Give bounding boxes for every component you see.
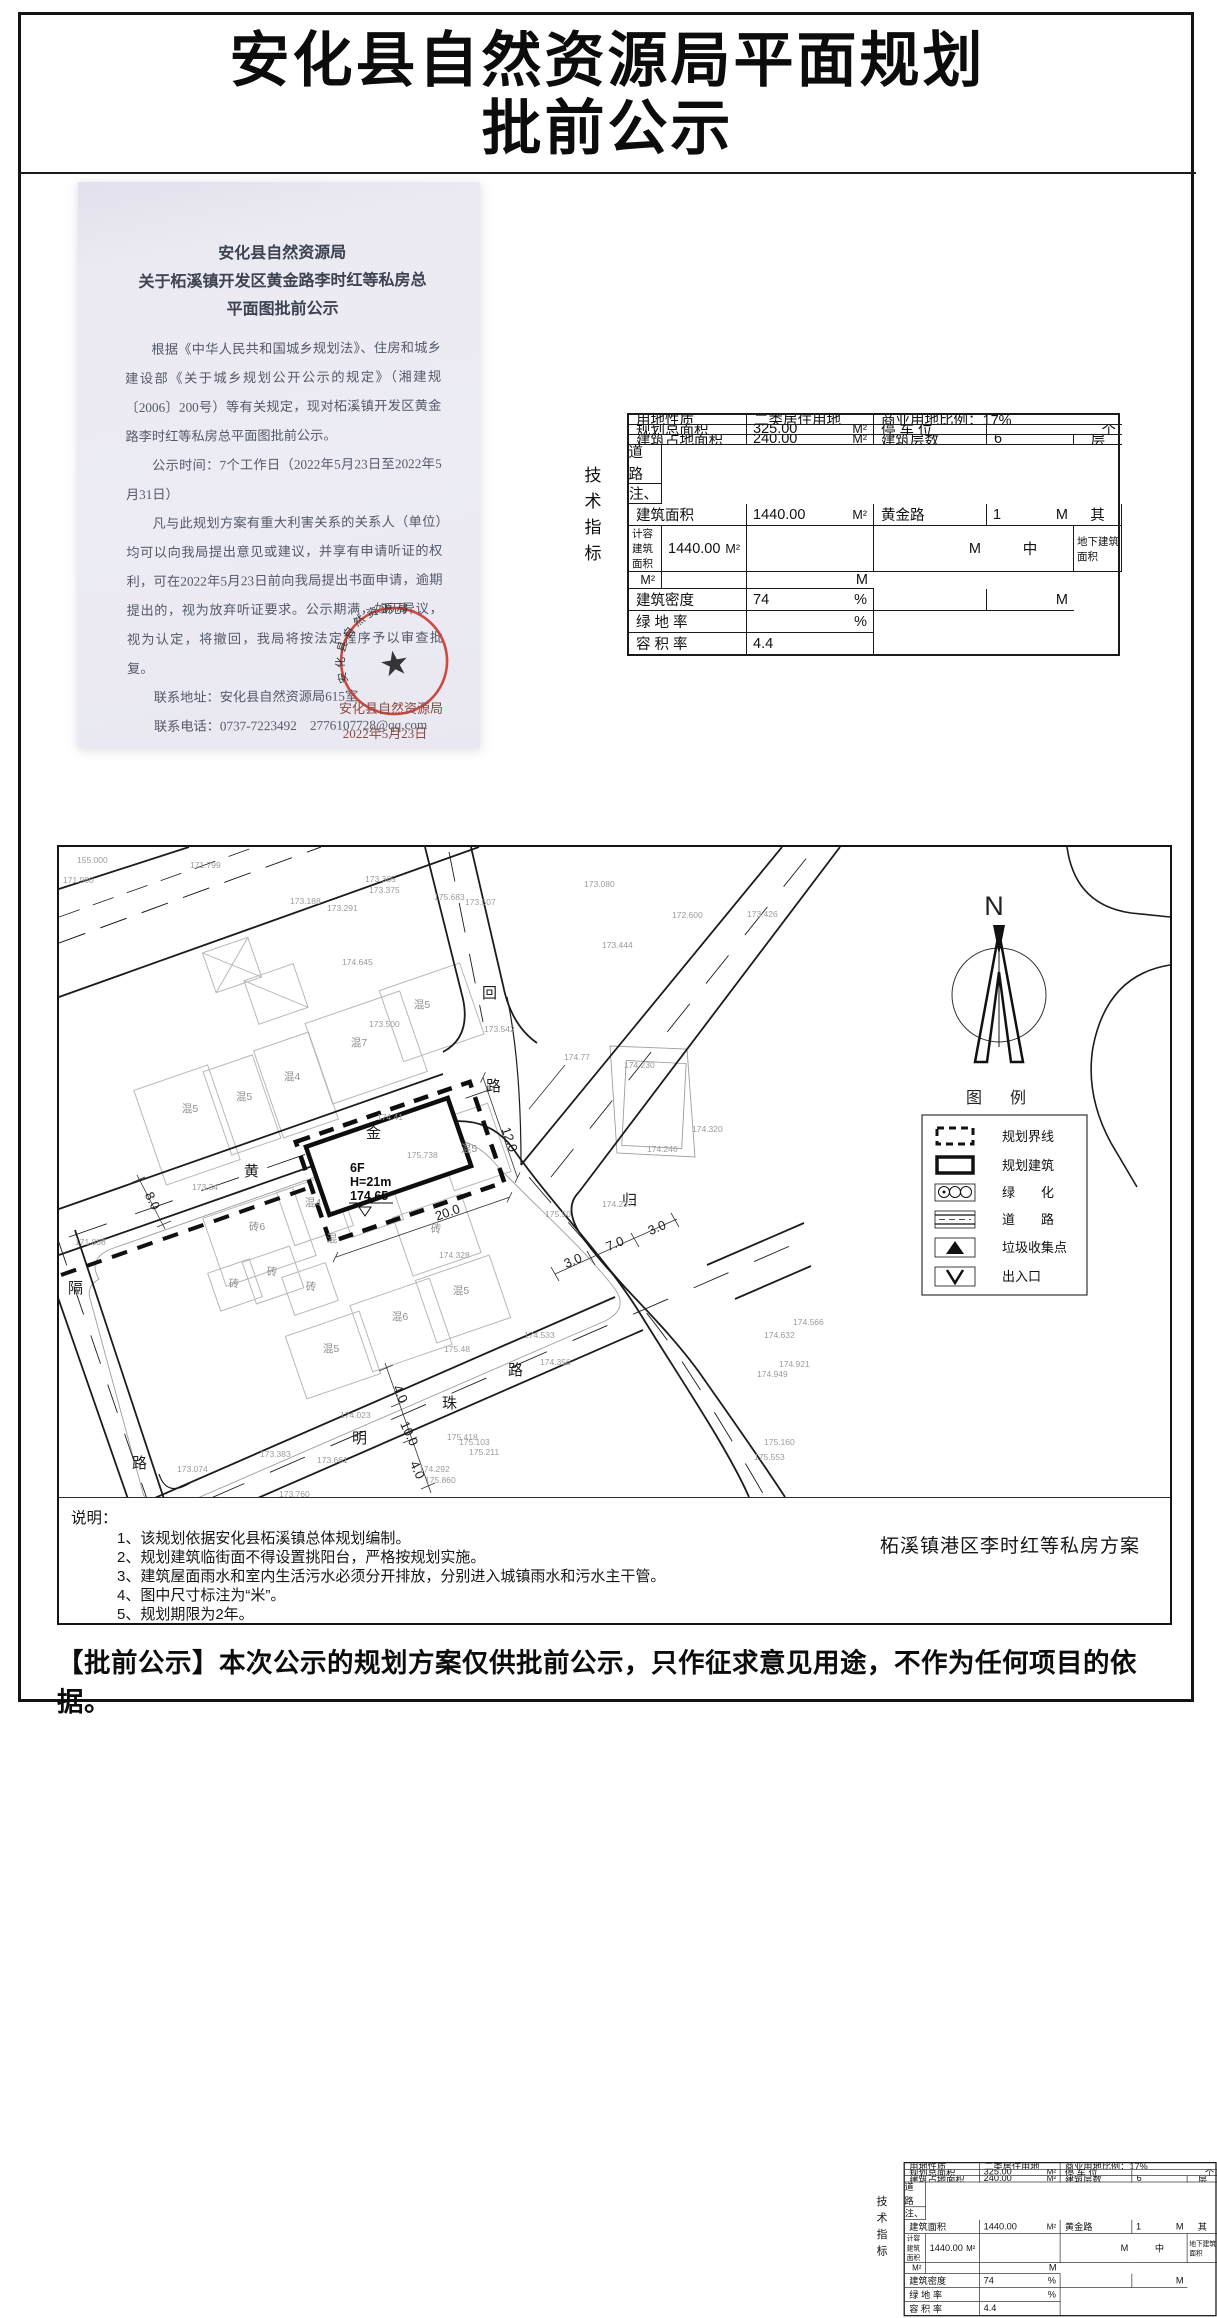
cell-floors-value: 6 <box>987 435 1074 445</box>
cell-green-label: 绿 地 率 <box>905 2288 980 2302</box>
cell-capacity-value: 1440.00M² <box>662 526 747 572</box>
elevation-label: 173.507 <box>465 897 496 907</box>
parcel-height: H=21m <box>350 1175 391 1189</box>
legend-entrance-icon <box>935 1267 975 1286</box>
technical-indicators-table-small: 技 术 指 标 用地性质 二类居住用地 商业用地比例：17% 规划总面积 325… <box>875 2162 1217 2318</box>
dim-label: 12.0 <box>498 1125 520 1154</box>
cell-floors-label: 建筑层数 <box>1060 2176 1132 2182</box>
unit-m: M <box>969 541 981 557</box>
legend-title: 图 例 <box>966 1089 1032 1107</box>
building-label: 混4 <box>305 1197 321 1209</box>
page-title: 安化县自然资源局平面规划 批前公示 <box>30 26 1185 162</box>
elevation-label: 172.600 <box>672 910 703 920</box>
unit-m: M <box>856 572 868 588</box>
elevation-label: 173.375 <box>369 885 400 895</box>
elevation-label: 174.41 <box>377 1112 403 1122</box>
road-label: 路 <box>486 1078 501 1095</box>
cell-parking-label: 停 车 位 <box>874 425 987 435</box>
cell-far-label: 容 积 率 <box>905 2302 980 2315</box>
elevation-label: 175.103 <box>459 1437 490 1447</box>
cell-underground-label: 地下建筑面积 <box>1074 526 1122 572</box>
elevation-label: 173.074 <box>177 1464 208 1474</box>
elevation-label: 173.34 <box>192 1182 218 1192</box>
road-label: 珠 <box>442 1395 457 1412</box>
elevation-label: 173.500 <box>369 1019 400 1029</box>
legend-item-label: 垃圾收集点 <box>1002 1240 1067 1255</box>
cell-remark-value <box>1132 2207 1217 2220</box>
elevation-label: 173.291 <box>327 903 358 913</box>
unit-m2: M² <box>912 2264 921 2273</box>
elevation-label: 175.738 <box>407 1150 438 1160</box>
unit-m2: M² <box>852 435 867 445</box>
tech-table-grid: 用地性质 二类居住用地 商业用地比例：17% 规划总面积 325.00M² 停 … <box>627 413 1120 656</box>
unit-pct: % <box>1048 2275 1056 2285</box>
cell-density-value: 74% <box>980 2274 1061 2288</box>
building-label: 混5 <box>323 1343 339 1355</box>
elevation-label: 175.553 <box>754 1452 785 1462</box>
unit-m2: M² <box>725 542 740 556</box>
unit-m: M <box>1049 2263 1057 2273</box>
note-item: 4、图中尺寸标注为“米”。 <box>117 1584 285 1605</box>
notice-letter-scan: 安化县自然资源局 关于柘溪镇开发区黄金路李时红等私房总 平面图批前公示 根据《中… <box>78 182 480 748</box>
cell-setback-m1: M <box>1060 2234 1132 2263</box>
unit-m2: M² <box>852 425 867 435</box>
unit-m: M <box>1056 592 1068 608</box>
plan-caption: 柘溪镇港区李时红等私房方案 <box>840 1531 1180 1558</box>
tech-side-label: 技 术 指 标 <box>875 2194 889 2260</box>
setback-number: 1 <box>1136 2221 1141 2231</box>
cell-setback-label: 后 退 道 路 红 线 <box>629 445 662 485</box>
unit-pct: % <box>854 614 867 630</box>
legend-building-icon <box>937 1157 973 1173</box>
elevation-label: 173.383 <box>260 1449 291 1459</box>
unit-m: M <box>1056 507 1068 523</box>
elevation-label: 174.949 <box>757 1369 788 1379</box>
cell-blank <box>1060 2274 1132 2288</box>
letter-signature-org: 安化县自然资源局 <box>306 698 476 717</box>
cell-setback-m2: M <box>980 2263 1061 2274</box>
elevation-label: 174.921 <box>779 1359 810 1369</box>
letter-heading-1: 安化县自然资源局 <box>124 239 440 269</box>
elevation-label: 174.292 <box>419 1464 450 1474</box>
north-letter: N <box>984 891 1004 921</box>
building-label: 混5 <box>461 1143 477 1155</box>
dim-label: 8.0 <box>142 1189 163 1212</box>
cell-green-label: 绿 地 率 <box>629 611 747 633</box>
unit-pct: % <box>1048 2289 1056 2299</box>
dim-label: 10.0 <box>397 1419 421 1448</box>
letter-heading-3: 平面图批前公示 <box>125 295 441 325</box>
road-label: 黄 <box>244 1163 259 1180</box>
elevation-label: 173.080 <box>584 879 615 889</box>
page-title-line2: 批前公示 <box>30 96 1185 162</box>
page-title-line1: 安化县自然资源局平面规划 <box>30 26 1185 96</box>
elevation-label: 173.542 <box>484 1024 515 1034</box>
cell-setback-label: 后 退 道 路 红 线 <box>905 2182 926 2207</box>
building-label: 混5 <box>182 1103 198 1115</box>
unit-m: M <box>1176 2221 1184 2231</box>
cell-gfa-label: 建筑面积 <box>629 504 747 526</box>
cell-setback-m3: M <box>1132 2274 1187 2288</box>
tech-side-label: 技 术 指 标 <box>582 463 604 567</box>
elevation-label: 173.444 <box>602 940 633 950</box>
legend-garbage-icon <box>935 1238 975 1257</box>
tech-side-char: 指 <box>875 2227 889 2244</box>
cell-gfa-value: 1440.00M² <box>980 2220 1061 2234</box>
tech-side-char: 术 <box>875 2210 889 2227</box>
elevation-label: 174.237 <box>602 1199 633 1209</box>
title-divider <box>20 172 1196 174</box>
letter-heading-2: 关于柘溪镇开发区黄金路李时红等私房总 <box>124 267 440 297</box>
gfa-number: 1440.00 <box>753 507 805 523</box>
building-label: 混7 <box>351 1037 367 1049</box>
tech-side-char: 技 <box>875 2194 889 2211</box>
site-plan: 6F H=21m 174.65 20.0 12.0 8.0 4.0 10.0 4… <box>57 845 1172 1625</box>
cell-floors-unit: 层 <box>1074 435 1122 445</box>
building-label: 混6 <box>392 1311 408 1323</box>
elevation-label: 174.328 <box>439 1250 470 1260</box>
cell-qi: 其 <box>1074 504 1122 526</box>
elevation-label: 173.426 <box>747 909 778 919</box>
letter-signature-date: 2022年5月23日 <box>300 723 470 742</box>
elevation-label: 173.760 <box>279 1489 310 1497</box>
setback-line: 道 路 <box>629 445 662 485</box>
cell-remark-label: 备注、其他 <box>905 2207 926 2220</box>
cell-floors-label: 建筑层数 <box>874 435 987 445</box>
cell-total-area-value: 325.00M² <box>747 425 874 435</box>
building-label: 砖 <box>229 1277 240 1290</box>
capacity-number: 1440.00 <box>668 541 720 557</box>
cell-setback-dist: 1M <box>987 504 1074 526</box>
parcel-floors: 6F <box>350 1161 365 1175</box>
unit-pct: % <box>854 592 867 608</box>
elevation-label: 173.365 <box>365 874 396 884</box>
cell-far-label: 容 积 率 <box>629 633 747 654</box>
cell-remark-value <box>987 484 1122 504</box>
legend-item-label: 出入口 <box>1002 1269 1041 1284</box>
legend-item-label: 道 路 <box>1002 1212 1054 1227</box>
road-label: 隔 <box>68 1280 83 1297</box>
cell-landuse-value: 二类居住用地 <box>747 415 874 425</box>
legend: 图 例 规划界线 规划建 <box>922 1089 1087 1295</box>
cell-far-value: 4.4 <box>980 2302 1061 2315</box>
cell-remark-label: 备注、其他 <box>629 484 662 504</box>
cell-footprint-value: 240.00M² <box>747 435 874 445</box>
legend-road-icon <box>935 1211 975 1228</box>
elevation-label: 155.000 <box>77 855 108 865</box>
building-label: 砖 <box>306 1280 317 1293</box>
footer-disclaimer: 【批前公示】本次公示的规划方案仅供批前公示，只作征求意见用途，不作为任何项目的依… <box>57 1641 1172 1719</box>
elevation-label: 173.188 <box>290 896 321 906</box>
road-label: 路 <box>508 1362 523 1379</box>
road-labels-layer: 黄 金 路 回 归 明 珠 路 隔 路 <box>68 985 637 1472</box>
cell-footprint-value: 240.00M² <box>980 2176 1061 2182</box>
north-arrow: N <box>952 891 1046 1062</box>
plan-notes: 说明： 1、该规划依据安化县柘溪镇总体规划编制。 2、规划建筑临街面不得设置挑阳… <box>59 1497 1170 1623</box>
building-label: 砖 <box>267 1265 278 1278</box>
elevation-label: 174.77 <box>564 1052 590 1062</box>
elevation-label: 174.246 <box>647 1144 678 1154</box>
elevation-label: 174.645 <box>342 957 373 967</box>
cell-underground-label: 地下建筑面积 <box>1187 2234 1217 2263</box>
notes-title: 说明： <box>71 1506 118 1528</box>
stamp-star-icon: ★ <box>376 643 413 686</box>
elevation-label: 174.023 <box>340 1410 371 1420</box>
far-number: 4.4 <box>984 2303 997 2313</box>
elevation-label: 175.50 <box>545 1209 571 1219</box>
cell-underground-value: M² <box>629 572 662 589</box>
unit-ge: 个 <box>1102 425 1117 435</box>
cell-setback-dist: 1M <box>1132 2220 1187 2234</box>
cell-zhong: 中 <box>987 526 1074 572</box>
tech-side-char: 标 <box>875 2243 889 2260</box>
far-number: 4.4 <box>753 636 773 652</box>
legend-item-label: 规划界线 <box>1002 1129 1054 1144</box>
setback-line: 道 路 <box>905 2182 926 2207</box>
note-item: 3、建筑屋面雨水和室内生活污水必须分开排放，分别进入城镇雨水和污水主干管。 <box>117 1565 665 1586</box>
capacity-number: 1440.00 <box>930 2243 963 2253</box>
unit-m: M <box>1176 2275 1184 2285</box>
site-plan-drawing: 6F H=21m 174.65 20.0 12.0 8.0 4.0 10.0 4… <box>59 847 1170 1497</box>
gfa-number: 1440.00 <box>984 2221 1017 2231</box>
cell-capacity-value: 1440.00M² <box>926 2234 980 2263</box>
elevation-label: 174.533 <box>524 1330 555 1340</box>
cell-blank <box>874 589 987 611</box>
elevation-label: 175.211 <box>469 1447 499 1457</box>
legend-item-label: 绿 化 <box>1002 1185 1054 1200</box>
cell-setback-m1: M <box>874 526 987 572</box>
elevation-label: 175.683 <box>434 892 465 902</box>
cell-commercial-ratio: 商业用地比例：17% <box>874 415 1122 425</box>
cell-blank <box>662 572 747 589</box>
cell-floors-unit: 层 <box>1187 2176 1217 2182</box>
cell-blank <box>980 2234 1061 2263</box>
parcel-elevation: 174.65 <box>350 1189 388 1203</box>
cell-gfa-label: 建筑面积 <box>905 2220 980 2234</box>
cell-density-label: 建筑密度 <box>629 589 747 611</box>
dim-label: 3.0 <box>562 1250 585 1271</box>
cell-capacity-label: 计容建筑面积 <box>629 526 662 572</box>
cell-far-value: 4.4 <box>747 633 874 654</box>
elevation-label: 174.320 <box>692 1124 723 1134</box>
elevation-label: 175.160 <box>764 1437 795 1447</box>
road-label: 明 <box>352 1430 367 1447</box>
cell-density-value: 74% <box>747 589 874 611</box>
density-number: 74 <box>753 592 769 608</box>
elevation-label: 175.860 <box>425 1475 456 1485</box>
building-label: 混 <box>327 1233 338 1245</box>
unit-m2: M² <box>1047 2176 1056 2182</box>
cell-footprint-label: 建筑占地面积 <box>629 435 747 445</box>
building-label: 混5 <box>236 1091 252 1103</box>
building-label: 砖6 <box>249 1220 265 1233</box>
cell-zhong: 中 <box>1132 2234 1187 2263</box>
footprint-number: 240.00 <box>984 2176 1012 2182</box>
footprint-number: 240.00 <box>753 435 797 445</box>
building-label: 混5 <box>414 999 430 1011</box>
tech-side-char: 术 <box>582 489 604 515</box>
cell-total-area-label: 规划总面积 <box>629 425 747 435</box>
legend-item-label: 规划建筑 <box>1002 1158 1054 1173</box>
dim-label: 3.0 <box>646 1217 669 1238</box>
note-item: 1、该规划依据安化县柘溪镇总体规划编制。 <box>117 1527 410 1548</box>
unit-m2: M² <box>1047 2222 1056 2231</box>
building-label: 砖 <box>431 1222 442 1235</box>
road-label: 路 <box>132 1455 147 1472</box>
note-item: 5、规划期限为2年。 <box>117 1603 254 1624</box>
cell-parking-value: 个 <box>987 425 1122 435</box>
density-number: 74 <box>984 2275 994 2285</box>
cell-blank <box>747 526 874 572</box>
road-label: 回 <box>482 985 497 1002</box>
setback-number: 1 <box>993 507 1001 523</box>
tech-side-char: 技 <box>582 463 604 489</box>
elevation-label: 174.356 <box>540 1357 571 1367</box>
elevation-label: 173.661 <box>317 1455 348 1465</box>
elevation-label: 171.960 <box>63 875 94 885</box>
legend-green-icon <box>935 1184 975 1201</box>
unit-m: M <box>1121 2243 1129 2253</box>
building-label: 混4 <box>284 1071 300 1083</box>
cell-setback-m3: M <box>987 589 1074 611</box>
cell-setback-road: 黄金路 <box>1060 2220 1132 2234</box>
cell-gfa-value: 1440.00M² <box>747 504 874 526</box>
planning-redline-dashes <box>61 1187 311 1275</box>
elevation-label: 171.799 <box>190 860 221 870</box>
cell-qi: 其 <box>1187 2220 1217 2234</box>
letter-paragraph-1: 根据《中华人民共和国城乡规划法》、住房和城乡建设部《关于城乡规划公开公示的规定》… <box>125 333 442 451</box>
tech-side-char: 指 <box>582 515 604 541</box>
cell-landuse-label: 用地性质 <box>629 415 747 425</box>
road-label: 金 <box>366 1125 381 1142</box>
cell-setback-m2: M <box>747 572 874 589</box>
note-item: 2、规划建筑临街面不得设置挑阳台，严格按规划实施。 <box>117 1546 485 1567</box>
cell-underground-value: M² <box>905 2263 926 2274</box>
cell-floors-value: 6 <box>1132 2176 1187 2182</box>
building-label: 混5 <box>453 1285 469 1297</box>
elevation-label: 171.888 <box>75 1237 106 1247</box>
unit-m2: M² <box>966 2244 975 2253</box>
elevation-label: 174.632 <box>764 1330 795 1340</box>
elevation-label: 174.566 <box>793 1317 824 1327</box>
cell-capacity-label: 计容建筑面积 <box>905 2234 926 2263</box>
legend-boundary-icon <box>937 1128 973 1144</box>
cell-green-value: % <box>980 2288 1061 2302</box>
tech-table-grid: 用地性质 二类居住用地 商业用地比例：17% 规划总面积 325.00M² 停 … <box>904 2162 1217 2316</box>
cell-green-value: % <box>747 611 874 633</box>
elevation-label: 174.230 <box>624 1060 655 1070</box>
unit-m2: M² <box>640 573 655 587</box>
cell-setback-road: 黄金路 <box>874 504 987 526</box>
cell-density-label: 建筑密度 <box>905 2274 980 2288</box>
cell-blank <box>926 2263 980 2274</box>
technical-indicators-table: 技 术 指 标 用地性质 二类居住用地 商业用地比例：17% 规划总面积 325… <box>582 413 1122 658</box>
elevation-label: 175.48 <box>444 1344 470 1354</box>
tech-side-char: 标 <box>582 541 604 567</box>
letter-paragraph-2: 公示时间：7个工作日（2022年5月23日至2022年5月31日） <box>126 449 442 509</box>
total-area-number: 325.00 <box>753 425 797 435</box>
unit-m2: M² <box>852 508 867 522</box>
